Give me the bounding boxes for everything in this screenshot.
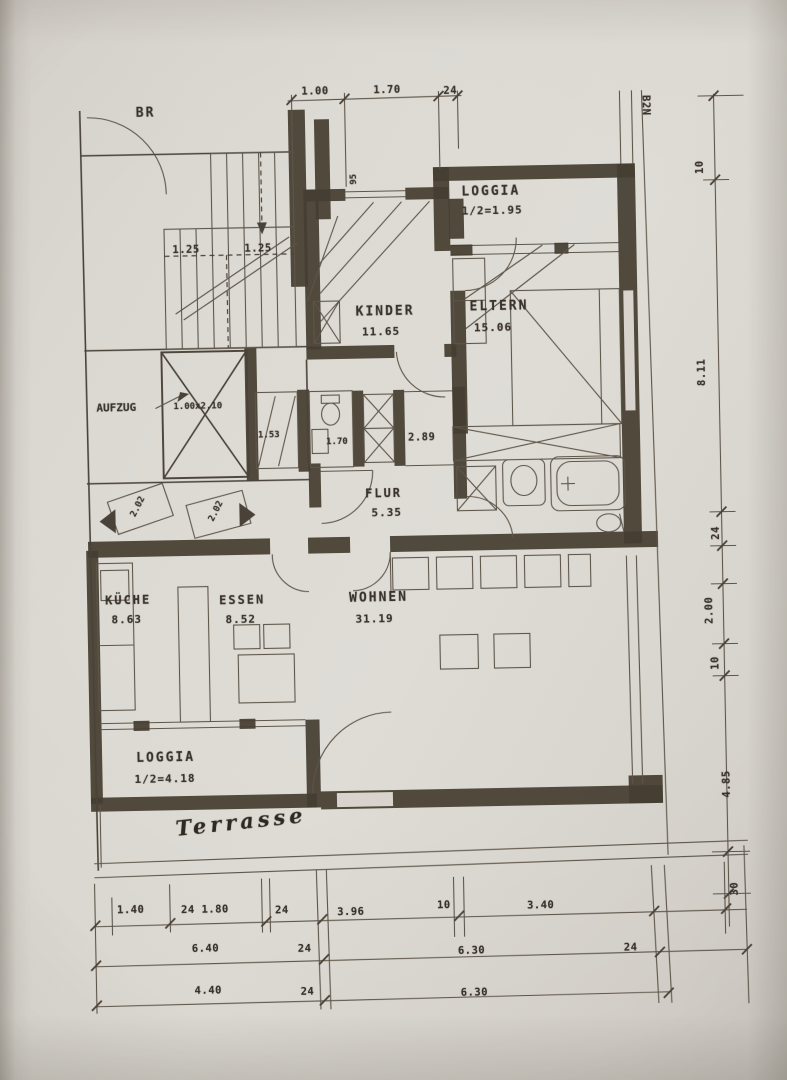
bathroom (453, 424, 626, 535)
room-eltern-area: 15.06 (474, 321, 512, 335)
dim-right-6: 4.85 (720, 770, 733, 798)
dim-storage: 2.89 (408, 431, 436, 444)
room-essen: ESSEN (219, 592, 265, 607)
dim-b2-4: 24 (624, 941, 638, 953)
dim-stairs-left: 1.25 (172, 244, 200, 257)
room-kinder-area: 11.65 (362, 325, 400, 339)
dim-niche: 1.53 (258, 430, 280, 440)
dim-b1-4: 3.96 (337, 906, 365, 919)
door-height-markers (99, 482, 256, 541)
plan-linework (0, 0, 787, 1080)
room-flur-area: 5.35 (371, 506, 402, 520)
dim-wc: 1.70 (326, 437, 348, 447)
living-furniture (392, 554, 592, 670)
floorplan: BR B2N 95 1.00 1.70 24 LOGGIA 1/2=1.95 K… (0, 0, 787, 1080)
room-kinder: KINDER (355, 304, 414, 320)
room-eltern: ELTERN (469, 298, 528, 314)
dim-b1-6: 3.40 (527, 899, 555, 912)
dim-right-2: 8.11 (696, 359, 709, 387)
room-aufzug: AUFZUG (96, 401, 136, 415)
kitchen-counter (96, 562, 210, 724)
dim-b1-2: 24 1.80 (181, 903, 229, 916)
scanned-floorplan-photo: BR B2N 95 1.00 1.70 24 LOGGIA 1/2=1.95 K… (0, 0, 787, 1080)
elevator-shaft (154, 351, 248, 479)
dim-right-4: 2.00 (703, 597, 716, 625)
room-wohnen-area: 31.19 (355, 612, 393, 626)
room-loggia-top: LOGGIA (461, 183, 520, 199)
bathtub (550, 456, 625, 511)
dim-right-1: 10 (694, 160, 706, 174)
dim-b2-2: 24 (298, 943, 312, 955)
label-window-95: 95 (349, 174, 359, 185)
dim-right-3: 24 (710, 526, 722, 540)
dim-b2-3: 6.30 (458, 944, 486, 957)
label-stairwell: BR (136, 105, 156, 120)
room-flur: FLUR (365, 486, 402, 501)
dim-stairs-right: 1.25 (244, 242, 272, 255)
dim-top-3: 24 (443, 85, 457, 97)
dim-b1-1: 1.40 (117, 904, 145, 917)
room-wohnen: WOHNEN (349, 590, 408, 606)
toilet (597, 514, 624, 533)
room-loggia-top-area: 1/2=1.95 (462, 203, 523, 217)
dim-b3-1: 4.40 (195, 984, 223, 997)
room-loggia-bottom-area: 1/2=4.18 (134, 772, 195, 786)
room-kueche-area: 8.63 (111, 613, 142, 627)
room-essen-area: 8.52 (225, 613, 256, 627)
dim-b2-1: 6.40 (192, 942, 220, 955)
dim-right-7: 30 (729, 882, 741, 896)
room-aufzug-size: 1.00x2.10 (173, 401, 222, 412)
dim-top-1: 1.00 (301, 85, 329, 98)
dim-top-2: 1.70 (373, 84, 401, 97)
washbasin (502, 459, 545, 506)
dim-b3-2: 24 (301, 986, 315, 998)
dim-b1-3: 24 (275, 904, 289, 916)
label-b2n: B2N (640, 95, 652, 116)
room-kueche: KÜCHE (105, 593, 151, 608)
dim-b3-3: 6.30 (461, 986, 489, 999)
dim-right-5: 10 (709, 656, 721, 670)
room-loggia-bottom: LOGGIA (136, 750, 195, 766)
dining-set (234, 624, 295, 703)
dim-b1-5: 10 (437, 899, 451, 911)
